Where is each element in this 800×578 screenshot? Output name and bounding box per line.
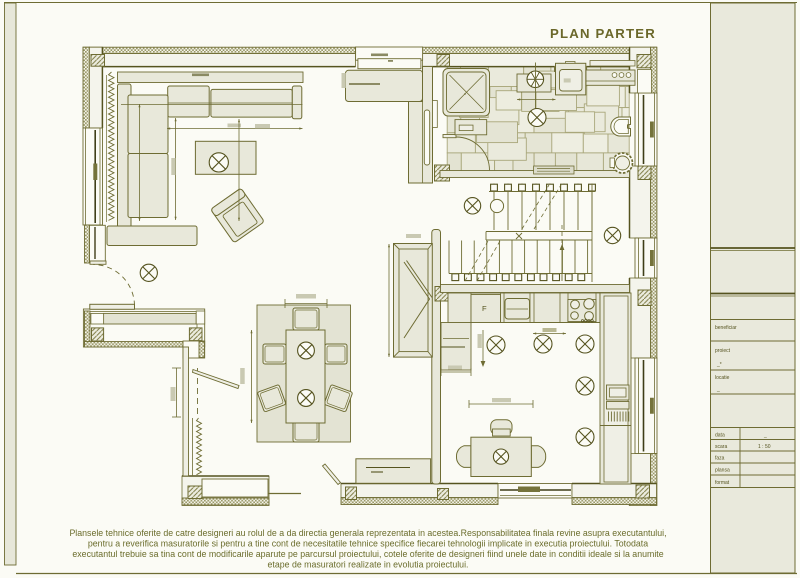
svg-text:PLAN PARTER: PLAN PARTER [550,26,656,41]
svg-text:locatie: locatie [715,375,730,381]
svg-text:format: format [715,480,730,486]
svg-text:pentru a reverifica masuratori: pentru a reverifica masuratorile si pent… [88,539,648,549]
svg-text:x: x [464,91,466,96]
svg-text:scara: scara [715,444,727,450]
svg-text:beneficiar: beneficiar [715,325,737,331]
svg-text:F: F [482,304,487,313]
svg-text:Plansele tehnice oferite de ca: Plansele tehnice oferite de catre design… [69,528,666,538]
svg-text:_*: _* [716,362,722,368]
svg-text:data: data [715,433,725,439]
svg-text:_: _ [716,387,720,393]
svg-text:executantul trebuie sa tina co: executantul trebuie sa tina cont de modi… [72,549,663,559]
svg-text:plansa: plansa [715,468,730,474]
svg-text:1 : 50: 1 : 50 [758,444,771,450]
svg-text:etape de masuratori realizate: etape de masuratori realizate in evoluti… [268,560,469,570]
svg-text:proiect: proiect [715,348,731,354]
svg-text:faza: faza [715,456,725,462]
svg-text:_: _ [763,433,767,439]
